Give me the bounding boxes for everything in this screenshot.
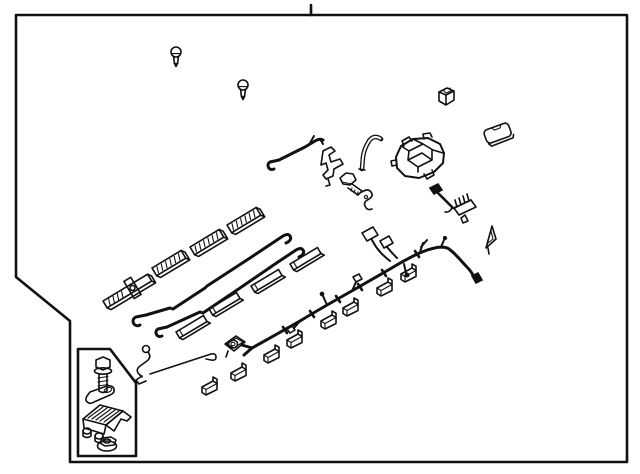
z-bracket: [321, 147, 343, 186]
cover-pad: [483, 122, 515, 148]
parts-diagram-canvas: [0, 0, 640, 474]
sleeve-1: [176, 314, 210, 340]
long-rod-2: [156, 249, 304, 337]
border-outline: [16, 15, 627, 462]
hex-bolt: [340, 173, 362, 195]
push-pin-clip-1: [171, 47, 181, 67]
flag-clip-1: [202, 377, 217, 395]
bracket-clip: [439, 88, 454, 105]
flag-clip-7: [377, 278, 392, 296]
diagram-image: [0, 0, 640, 474]
sleeve-3: [251, 268, 285, 294]
ribbed-rail-3: [227, 206, 265, 236]
guide-rail: [100, 268, 157, 313]
hook-rod: [268, 136, 323, 170]
main-wiring-harness: [242, 227, 482, 355]
flag-clip-6: [343, 298, 358, 316]
inset-strap-clip: [86, 386, 114, 404]
bent-tube: [359, 137, 381, 170]
drawing-border: [16, 5, 627, 462]
flag-clip-5: [321, 311, 336, 329]
junction-connector-assembly: [391, 133, 444, 179]
ribbed-rail-2: [190, 228, 228, 258]
flag-clip-2: [231, 363, 246, 381]
push-pin-clip-2: [238, 80, 248, 100]
thin-hook-rod: [150, 354, 216, 374]
pigtail-sub-harness: [430, 184, 476, 223]
flag-clip-3: [264, 345, 279, 363]
hose-clamp: [362, 190, 372, 210]
wire-clamp: [136, 346, 150, 385]
ribbed-rail-1: [152, 249, 190, 279]
pennant-clip: [486, 226, 496, 254]
line-art: [16, 5, 627, 462]
hardware-inset: [78, 349, 136, 456]
